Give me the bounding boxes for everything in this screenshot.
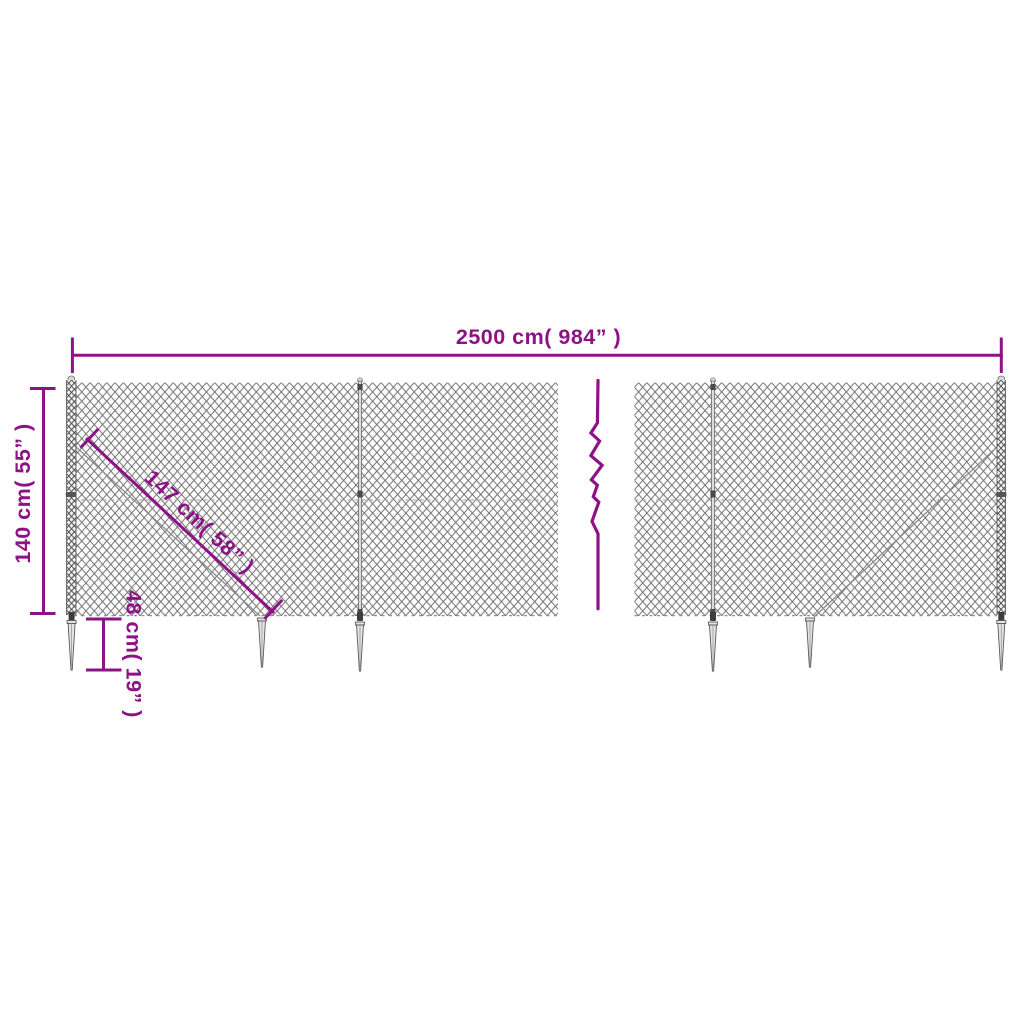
svg-text:48 cm( 19” ): 48 cm( 19” )	[122, 590, 146, 718]
svg-text:140 cm( 55” ): 140 cm( 55” )	[11, 423, 35, 563]
svg-text:2500 cm( 984” ): 2500 cm( 984” )	[456, 325, 621, 349]
